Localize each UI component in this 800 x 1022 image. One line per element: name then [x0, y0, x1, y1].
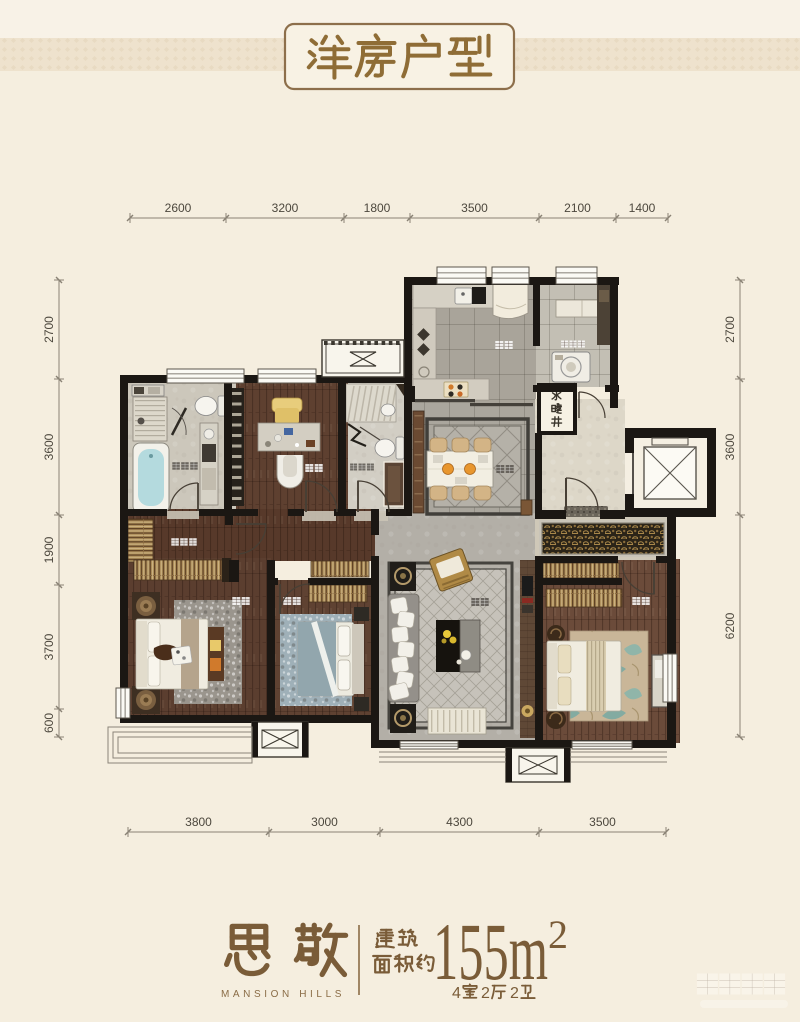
svg-text:2100: 2100: [564, 201, 591, 215]
svg-text:155m: 155m: [433, 906, 548, 997]
svg-text:2600: 2600: [165, 201, 192, 215]
svg-text:3700: 3700: [42, 633, 56, 660]
svg-text:1800: 1800: [364, 201, 391, 215]
svg-text:2700: 2700: [723, 316, 737, 343]
svg-text:1400: 1400: [629, 201, 656, 215]
svg-text:2700: 2700: [42, 316, 56, 343]
svg-text:3600: 3600: [42, 433, 56, 460]
svg-text:4: 4: [452, 985, 461, 1002]
svg-text:3500: 3500: [461, 201, 488, 215]
svg-text:3800: 3800: [185, 815, 212, 829]
svg-text:MANSION HILLS: MANSION HILLS: [221, 989, 345, 1000]
svg-text:3000: 3000: [311, 815, 338, 829]
svg-text:4300: 4300: [446, 815, 473, 829]
svg-text:1900: 1900: [42, 536, 56, 563]
svg-text:6200: 6200: [723, 612, 737, 639]
svg-text:2: 2: [548, 912, 568, 957]
svg-text:3600: 3600: [723, 433, 737, 460]
svg-text:2: 2: [510, 985, 519, 1002]
svg-text:600: 600: [42, 713, 56, 733]
svg-text:3200: 3200: [272, 201, 299, 215]
svg-text:3500: 3500: [589, 815, 616, 829]
svg-text:2: 2: [481, 985, 490, 1002]
